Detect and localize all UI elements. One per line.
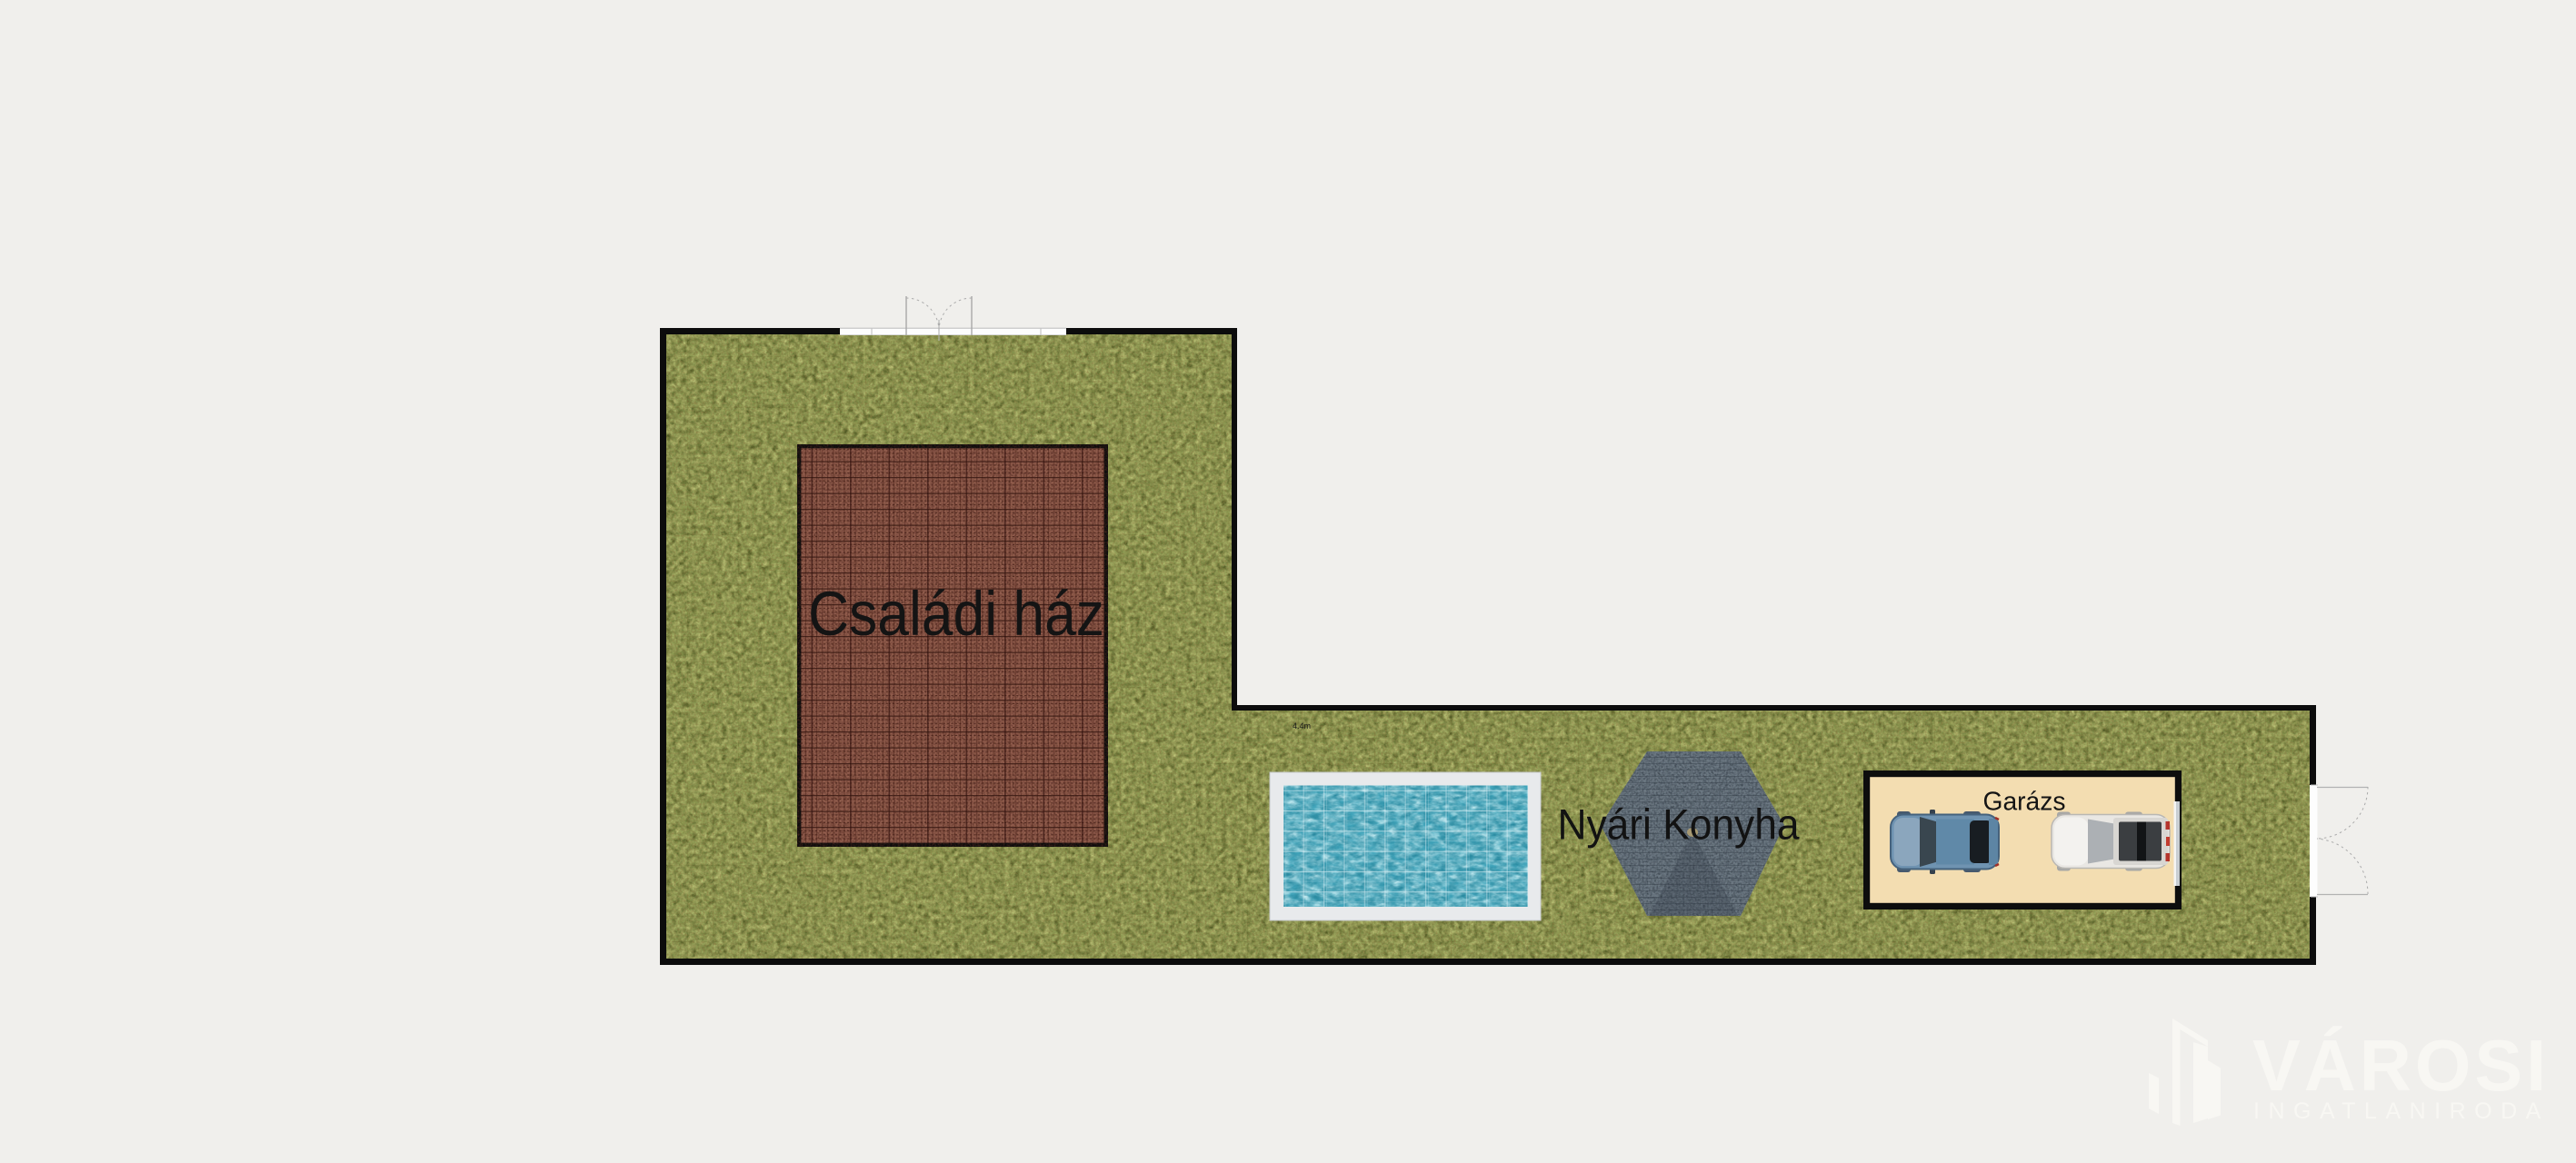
svg-text:Családi ház: Családi ház <box>808 579 1104 649</box>
svg-text:4.4m: 4.4m <box>1293 721 1311 731</box>
svg-text:VÁROSI: VÁROSI <box>2252 1025 2550 1106</box>
svg-text:INGATLANIRODA: INGATLANIRODA <box>2253 1098 2550 1124</box>
svg-text:Garázs: Garázs <box>1983 788 2066 817</box>
svg-text:Nyári Konyha: Nyári Konyha <box>1558 801 1801 850</box>
